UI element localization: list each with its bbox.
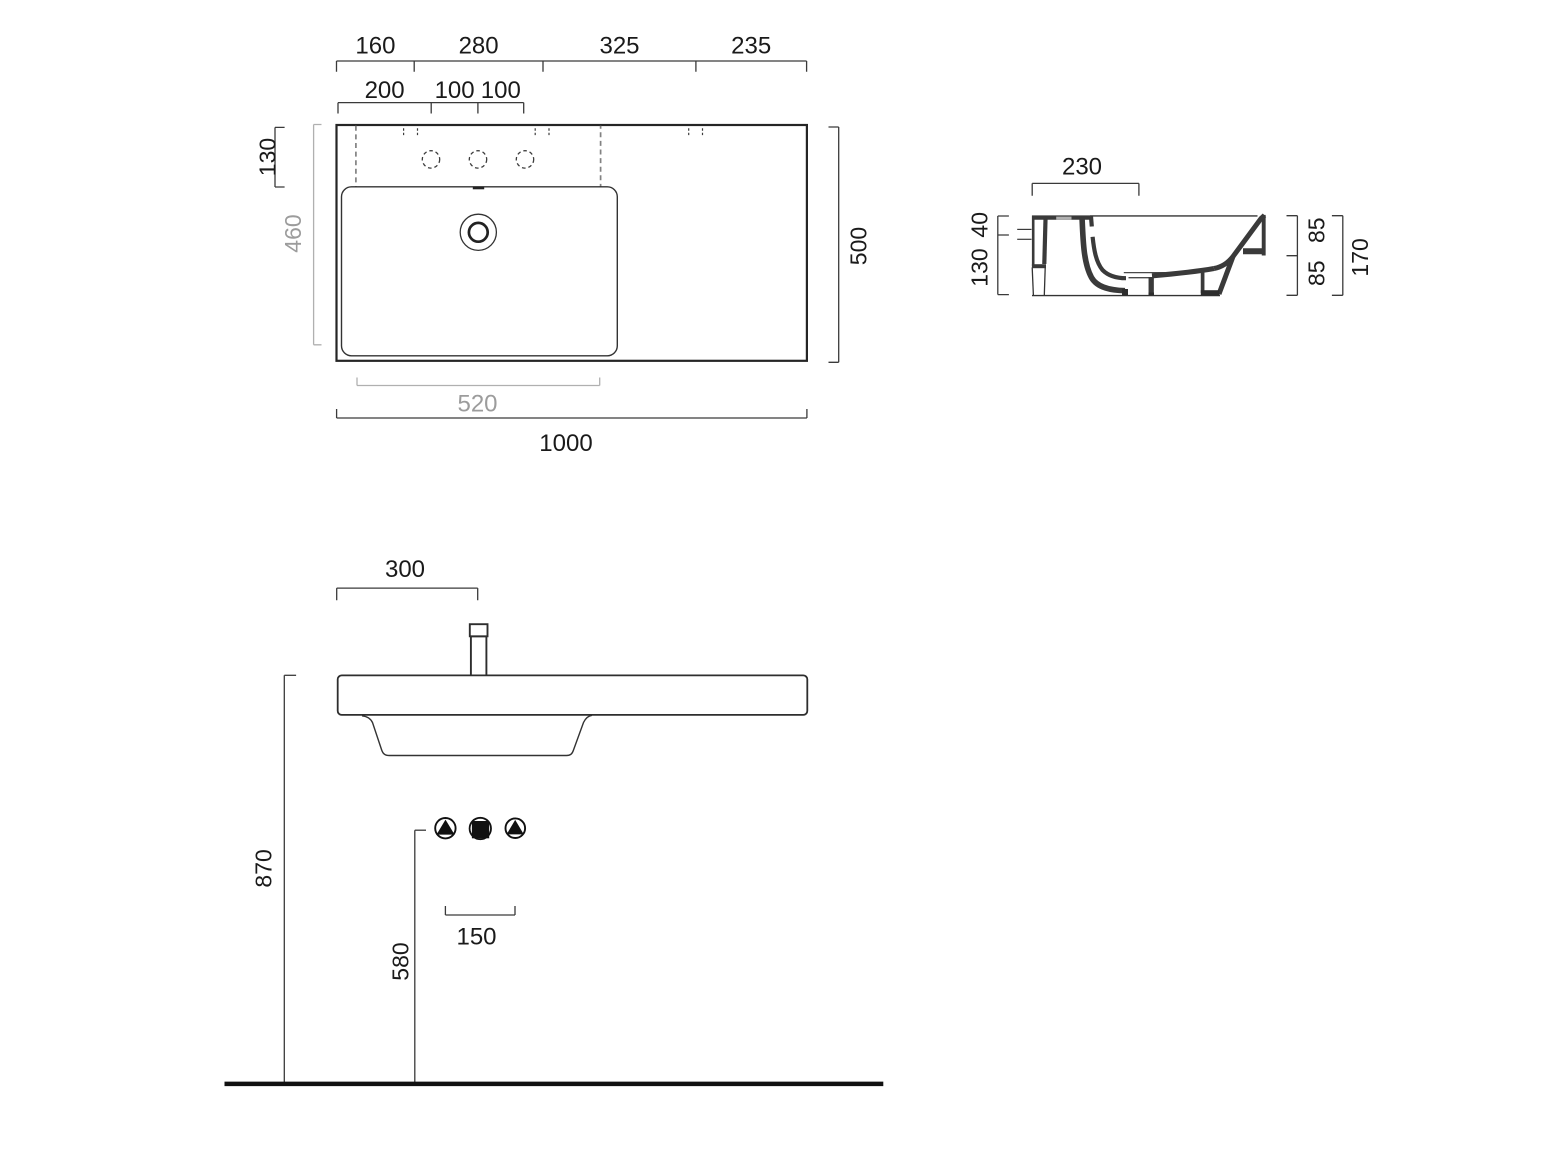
svg-text:280: 280 bbox=[459, 33, 499, 60]
svg-text:460: 460 bbox=[280, 214, 306, 252]
svg-text:870: 870 bbox=[251, 849, 277, 887]
svg-text:230: 230 bbox=[1062, 154, 1102, 181]
svg-text:170: 170 bbox=[1347, 238, 1373, 276]
svg-text:130: 130 bbox=[967, 248, 993, 286]
svg-text:130: 130 bbox=[255, 138, 281, 176]
svg-text:520: 520 bbox=[457, 391, 497, 418]
svg-text:85: 85 bbox=[1304, 260, 1330, 286]
svg-text:150: 150 bbox=[456, 924, 496, 951]
svg-text:40: 40 bbox=[967, 212, 993, 238]
svg-text:1000: 1000 bbox=[539, 430, 592, 457]
svg-text:100: 100 bbox=[435, 77, 475, 104]
svg-text:235: 235 bbox=[731, 33, 771, 60]
svg-text:300: 300 bbox=[385, 556, 425, 583]
svg-text:160: 160 bbox=[355, 33, 395, 60]
svg-text:85: 85 bbox=[1304, 217, 1330, 243]
svg-text:580: 580 bbox=[388, 942, 414, 980]
svg-text:500: 500 bbox=[846, 227, 872, 265]
svg-text:200: 200 bbox=[365, 77, 405, 104]
svg-text:100: 100 bbox=[481, 77, 521, 104]
svg-text:325: 325 bbox=[599, 33, 639, 60]
